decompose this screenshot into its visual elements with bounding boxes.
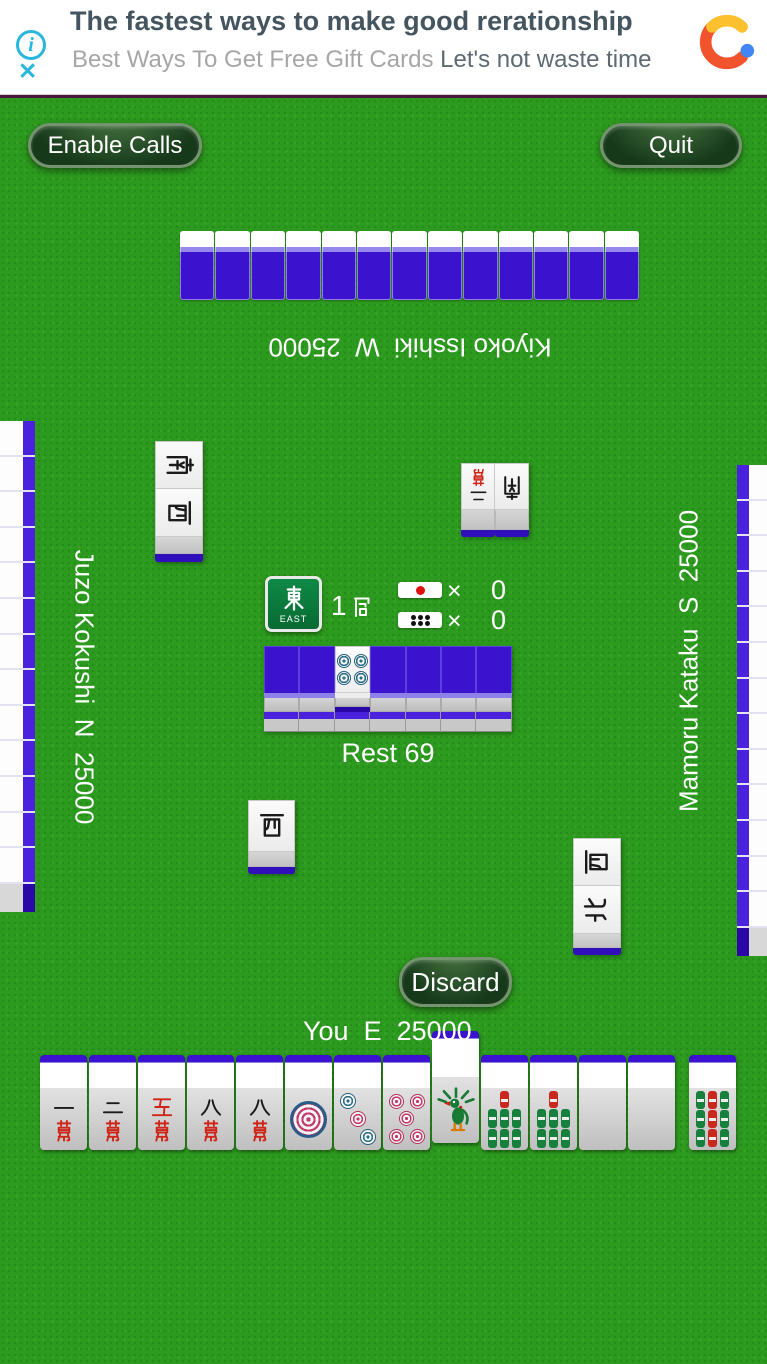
wall-tile-edge-end: [0, 884, 35, 912]
mahjong-game-screen: i ✕ The fastest ways to make good rerati…: [0, 0, 767, 1364]
wall-tile-edge: [0, 635, 35, 671]
hand-tile-8man[interactable]: [187, 1055, 234, 1150]
tile-edge: [248, 852, 295, 867]
right-player-label: Mamoru Kataku S 25000: [674, 510, 705, 812]
wall-tile-edge: [737, 679, 767, 715]
tile-back-edge: [573, 948, 621, 955]
face-down-tile: [251, 231, 285, 300]
tile-back-edge: [461, 530, 495, 537]
discard-tile-north: [573, 886, 621, 934]
riichi-stick-icon: [398, 582, 442, 598]
hand-tile-7sou[interactable]: [530, 1055, 577, 1150]
wall-tile-edge: [737, 465, 767, 501]
face-down-tile: [569, 231, 603, 300]
tile-back-edge: [495, 530, 529, 537]
wall-tile-edge: [0, 848, 35, 884]
ad-title: The fastest ways to make good rerationsh…: [70, 6, 633, 37]
wall-tile-edge: [737, 643, 767, 679]
hand-tile-white-dragon[interactable]: [628, 1055, 675, 1150]
dead-wall-tile: [264, 646, 299, 712]
wall-tile-edge: [0, 421, 35, 457]
left-wall: [0, 421, 35, 912]
tile-edge: [155, 537, 203, 554]
dead-wall: [264, 646, 512, 732]
discard-button[interactable]: Discard: [399, 957, 512, 1007]
face-down-tile: [605, 231, 639, 300]
hand-tile-1sou-selected[interactable]: [432, 1031, 479, 1143]
dead-wall-lower-tile: [441, 712, 476, 732]
wall-tile-edge: [0, 563, 35, 599]
face-down-tile: [499, 231, 533, 300]
top-player-label: Kiyoko Isshiki W 25000: [268, 332, 551, 363]
right-player-discards: [573, 838, 621, 955]
wall-tile-edge: [0, 813, 35, 849]
wall-tile-edge: [0, 741, 35, 777]
wall-tile-edge: [0, 706, 35, 742]
wall-tile-edge: [0, 528, 35, 564]
face-down-tile: [534, 231, 568, 300]
round-wind-indicator: EAST: [265, 576, 322, 632]
enable-calls-button[interactable]: Enable Calls: [28, 123, 202, 168]
hand-counter: 1: [331, 590, 374, 622]
wall-tile-edge: [737, 857, 767, 893]
quit-button[interactable]: Quit: [600, 123, 742, 168]
tile-edge: [461, 510, 495, 530]
dead-wall-tile: [370, 646, 405, 712]
hand-tile-2man[interactable]: [89, 1055, 136, 1150]
ad-close-icon[interactable]: ✕: [18, 60, 37, 83]
you-player-label: You E 25000: [303, 1016, 472, 1047]
ad-info-icon[interactable]: i: [16, 30, 46, 60]
honba-count: 0: [491, 605, 506, 636]
discard-tile-west: [573, 838, 621, 886]
wall-tile-edge: [0, 457, 35, 493]
face-down-tile: [286, 231, 320, 300]
riichi-count: 0: [491, 575, 506, 606]
hand-tile-1pin[interactable]: [285, 1055, 332, 1150]
wall-tile-edge: [737, 785, 767, 821]
face-down-tile: [357, 231, 391, 300]
dead-wall-lower-tile: [370, 712, 405, 732]
dead-wall-lower-tile: [264, 712, 299, 732]
tile-edge: [573, 934, 621, 948]
your-hand: [40, 1055, 736, 1150]
hand-tile-5pin[interactable]: [383, 1055, 430, 1150]
hand-tile-3pin[interactable]: [334, 1055, 381, 1150]
hand-tile-white-dragon[interactable]: [579, 1055, 626, 1150]
ad-network-logo-icon: [698, 12, 756, 76]
face-down-tile: [463, 231, 497, 300]
wall-tile-edge: [737, 892, 767, 928]
wall-tile-edge: [0, 777, 35, 813]
wall-tile-edge: [737, 572, 767, 608]
dead-wall-tile: [476, 646, 511, 712]
discard-tile-south: [495, 463, 529, 537]
tile-back-edge: [155, 554, 203, 562]
face-down-tile: [392, 231, 426, 300]
top-player-discards: [461, 463, 529, 537]
dead-wall-lower-tile: [335, 712, 370, 732]
wall-tile-edge: [737, 714, 767, 750]
discard-tile-west: [155, 489, 203, 537]
wall-tile-edge: [737, 750, 767, 786]
left-player-discards: [155, 441, 203, 562]
ad-subtitle-text: Best Ways To Get Free Gift Cards: [72, 46, 433, 73]
discard-tile-2man: [461, 463, 495, 537]
dead-wall-tile: [406, 646, 441, 712]
face-down-tile: [180, 231, 214, 300]
dead-wall-lower-tile: [299, 712, 334, 732]
face-down-tile: [215, 231, 249, 300]
tile-edge: [495, 510, 529, 530]
hand-tile-7sou[interactable]: [481, 1055, 528, 1150]
right-wall: [737, 465, 767, 956]
drawn-tile-9sou[interactable]: [689, 1055, 736, 1150]
dora-indicator-tile-4pin: [335, 646, 370, 712]
riichi-times: ×: [447, 577, 462, 606]
ad-subtitle-cta: Let's not waste time: [440, 46, 651, 73]
wall-tile-edge: [737, 501, 767, 537]
hand-number: 1: [331, 590, 347, 622]
honba-times: ×: [447, 607, 462, 636]
tile-back-edge: [248, 867, 295, 874]
hand-tile-5man-red[interactable]: [138, 1055, 185, 1150]
wall-tile-edge-end: [737, 928, 767, 956]
round-wind-text: EAST: [280, 614, 308, 624]
rest-counter: Rest 69: [313, 738, 463, 769]
you-discards: [248, 800, 295, 874]
dead-wall-lower-tile: [406, 712, 441, 732]
hand-tile-8man[interactable]: [236, 1055, 283, 1150]
wall-tile-edge: [0, 599, 35, 635]
honba-stick-icon: [398, 612, 442, 628]
wall-tile-edge: [0, 492, 35, 528]
wall-tile-edge: [737, 536, 767, 572]
discard-tile-south: [155, 441, 203, 489]
dead-wall-tile: [441, 646, 476, 712]
ad-subtitle: Best Ways To Get Free Gift Cards Let's n…: [72, 46, 651, 74]
wall-tile-edge: [737, 821, 767, 857]
dead-wall-lower-tile: [476, 712, 511, 732]
hand-tile-1man[interactable]: [40, 1055, 87, 1150]
wall-tile-edge: [0, 670, 35, 706]
left-player-label: Juzo Kokushi N 25000: [69, 550, 100, 825]
face-down-tile: [428, 231, 462, 300]
bamboo-bird-icon: [436, 1084, 476, 1136]
ad-banner[interactable]: i ✕ The fastest ways to make good rerati…: [0, 0, 767, 95]
discard-tile-west: [248, 800, 295, 852]
kyoku-kanji-icon: [349, 594, 374, 619]
top-player-hidden-hand: [180, 231, 639, 300]
dead-wall-tile: [299, 646, 334, 712]
wall-tile-edge: [737, 607, 767, 643]
face-down-tile: [322, 231, 356, 300]
